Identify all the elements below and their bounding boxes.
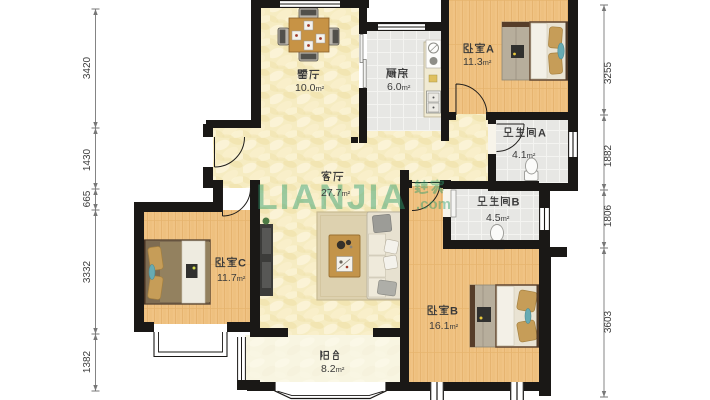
svg-text:B: B bbox=[450, 306, 458, 318]
svg-text:27.7m²: 27.7m² bbox=[321, 187, 351, 199]
svg-text:1382: 1382 bbox=[82, 350, 93, 373]
svg-text:10.0m²: 10.0m² bbox=[295, 82, 325, 94]
svg-text:1430: 1430 bbox=[82, 148, 93, 171]
svg-text:665: 665 bbox=[82, 190, 93, 207]
svg-text:11.7m²: 11.7m² bbox=[217, 272, 246, 284]
svg-text:4.5m²: 4.5m² bbox=[486, 212, 510, 224]
svg-text:1882: 1882 bbox=[603, 144, 614, 167]
svg-text:B: B bbox=[512, 197, 520, 209]
svg-text:A: A bbox=[538, 128, 546, 140]
svg-text:3332: 3332 bbox=[82, 260, 93, 283]
svg-text:1806: 1806 bbox=[603, 204, 614, 227]
svg-text:6.0m²: 6.0m² bbox=[387, 81, 411, 93]
svg-text:4.1m²: 4.1m² bbox=[512, 149, 536, 161]
svg-text:A: A bbox=[486, 44, 494, 56]
svg-text:11.3m²: 11.3m² bbox=[463, 56, 492, 68]
svg-text:16.1m²: 16.1m² bbox=[429, 320, 459, 332]
svg-text:3420: 3420 bbox=[82, 56, 93, 79]
svg-text:.com: .com bbox=[416, 196, 451, 213]
svg-text:C: C bbox=[238, 258, 246, 270]
svg-text:3603: 3603 bbox=[603, 310, 614, 333]
svg-text:3255: 3255 bbox=[603, 61, 614, 84]
svg-text:8.2m²: 8.2m² bbox=[321, 363, 345, 375]
